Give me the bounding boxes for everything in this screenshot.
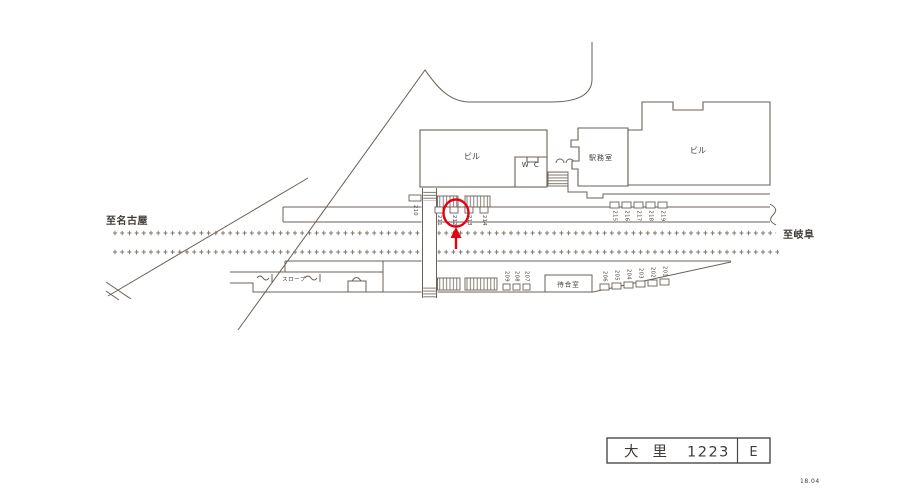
- upper-platform: [283, 207, 770, 222]
- ad-label-217: 217: [636, 211, 642, 222]
- ad-box-209: [503, 284, 510, 290]
- ad-box-205: [612, 283, 621, 289]
- ad-box-217: [634, 202, 643, 208]
- ad-label-208: 208: [514, 271, 520, 282]
- ad-box-204: [624, 282, 633, 288]
- ad-box-206: [600, 284, 609, 290]
- size-class: E: [749, 445, 757, 460]
- ad-label-214: 214: [481, 215, 487, 226]
- revision-date: 18.04: [800, 478, 820, 485]
- stairs-lower-2: [465, 278, 497, 290]
- ad-box-203: [636, 281, 645, 287]
- ad-label-218: 218: [648, 211, 654, 222]
- title-block: 大里 1223 E: [607, 438, 770, 463]
- platform-shelter: [348, 281, 366, 292]
- railway-tracks: [113, 233, 779, 252]
- ad-box-214: [480, 207, 488, 213]
- building-right-outline: [628, 102, 770, 185]
- building-left-label: ビル: [464, 152, 480, 161]
- ad-box-211: [435, 207, 443, 213]
- ad-label-210: 210: [412, 205, 418, 216]
- station-layout-drawing: スロープ ビル ビル 駅務室 W C 待合室: [0, 0, 919, 491]
- stairs-upper-2: [465, 196, 490, 207]
- building-left-outline: [420, 130, 547, 187]
- station-office-label: 駅務室: [589, 153, 613, 162]
- ad-label-216: 216: [624, 211, 630, 222]
- ad-label-204: 204: [626, 269, 632, 280]
- buildings: [420, 102, 770, 187]
- ad-label-202: 202: [650, 267, 656, 278]
- drawing-canvas: スロープ ビル ビル 駅務室 W C 待合室: [0, 0, 919, 491]
- direction-right-label: 至岐阜: [783, 228, 815, 241]
- stairs-by-office: [548, 172, 568, 186]
- road-edge-left: [108, 178, 308, 296]
- crossing-corridor: [422, 188, 438, 299]
- ad-box-202: [648, 280, 657, 286]
- ad-label-215: 215: [612, 211, 618, 222]
- platform-break-mark: [770, 204, 776, 225]
- ad-box-201: [660, 279, 669, 285]
- ad-label-203: 203: [638, 268, 644, 279]
- ad-label-209: 209: [504, 271, 510, 282]
- corridor-stairs-top: [423, 190, 436, 201]
- ad-label-207: 207: [524, 271, 530, 282]
- corridor-body: [422, 188, 438, 299]
- station-name: 大里: [624, 444, 681, 461]
- back-fence-line: [568, 186, 770, 198]
- ad-box-212: [450, 207, 458, 213]
- ad-box-210: [409, 195, 421, 201]
- ad-label-211: 211: [436, 215, 442, 226]
- ad-box-219: [658, 202, 667, 208]
- ad-box-218: [646, 202, 655, 208]
- ad-box-208: [513, 284, 520, 290]
- ad-label-206: 206: [602, 271, 608, 282]
- upper-platform-edges: [283, 207, 770, 222]
- ad-box-215: [610, 202, 619, 208]
- platform-shelter-roof: [352, 278, 361, 282]
- corridor-stairs-bottom: [423, 287, 436, 298]
- building-right-label: ビル: [690, 146, 706, 155]
- ad-label-201: 201: [662, 266, 668, 277]
- toilet-label: W C: [522, 161, 541, 169]
- direction-left-label: 至名古屋: [106, 214, 148, 227]
- ad-box-207: [523, 284, 530, 290]
- ad-label-205: 205: [614, 270, 620, 281]
- ad-label-212: 212: [451, 215, 457, 226]
- ticket-gate-arcs: [556, 159, 574, 163]
- ad-box-216: [622, 202, 631, 208]
- ad-label-219: 219: [660, 211, 666, 222]
- stairs-lower-1: [438, 278, 461, 290]
- location-number: 1223: [687, 445, 730, 461]
- slope-label: スロープ: [282, 276, 306, 283]
- waiting-room-label: 待合室: [557, 280, 580, 289]
